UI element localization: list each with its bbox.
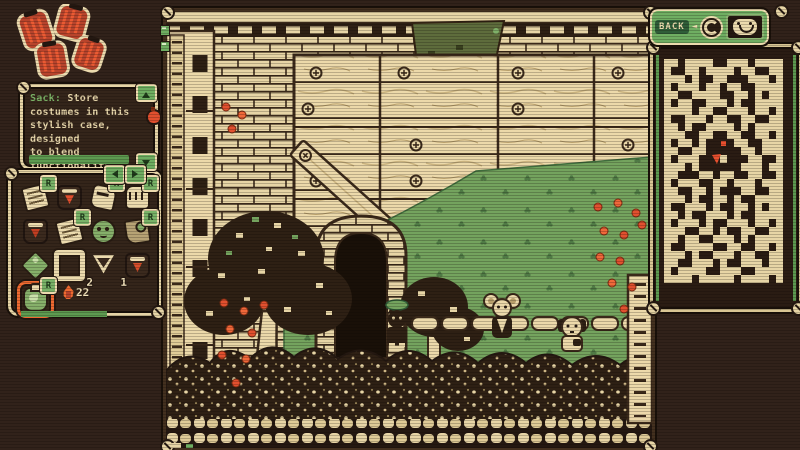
back-button-label: BACK [655,20,689,34]
equipped-badge: R [142,209,159,226]
debris-pixel [186,444,193,448]
frog-tile [726,14,764,40]
game-scene [166,11,652,448]
sack-case-cluster-icon [8,4,108,84]
inventory-prev-page-button[interactable] [104,165,125,184]
screw-icon [774,4,789,19]
inventory-panel: RRRRR21R 22 [8,170,162,316]
screw-icon [151,305,166,320]
screw-icon [4,166,19,181]
ember-flame-icon [63,285,74,299]
debris-pixel [172,443,181,448]
apron-tunic-icon [23,219,48,244]
right-pillar [628,275,652,423]
cobblestone-path [166,419,652,448]
controller-button-icon [700,16,723,39]
game-screen: Sack: Store costumes in this stylish cas… [0,0,800,450]
equipped-badge: R [74,209,91,226]
back-arrow-icon: ◄ [692,22,697,32]
sack-icon [34,39,70,80]
screw-icon [646,301,661,316]
panel-accent-bar [21,311,107,317]
equipped-badge: R [40,175,57,192]
text-reveal-bar [29,155,129,164]
screw-icon [791,301,800,316]
screw-icon [643,439,658,450]
character-cat [386,300,408,347]
inventory-slot-slingshot[interactable]: R [121,215,154,248]
inventory-slot-apron-tunic[interactable] [19,215,52,248]
equipped-badge: R [40,277,57,294]
inventory-slot-display-frame[interactable]: 2 [53,249,86,282]
back-button[interactable]: BACK ◄ [650,9,769,45]
item-count: 1 [120,276,127,289]
ember-counter: 22 [63,285,89,299]
display-frame-icon [54,250,85,281]
gem-accent-icon [160,41,170,52]
item-description-panel: Sack: Store costumes in this stylish cas… [20,84,158,170]
scroll-up-button[interactable] [136,84,157,102]
inventory-slot-costume-tag[interactable]: R [19,181,52,214]
frog-icon [733,19,757,35]
screw-icon [160,5,175,20]
player-marker [713,155,720,163]
ember-count: 22 [76,286,89,299]
gem-accent-icon [160,25,170,36]
scarf-tunic-icon [125,253,150,278]
inventory-slot-work-gloves[interactable]: R [87,181,120,214]
screw-icon [16,80,31,95]
red-tunic-icon [57,185,82,210]
minimap-grid [664,59,783,283]
screw-icon [791,40,800,55]
berry-marker-icon [146,109,162,125]
minimap-panel [650,44,800,312]
item-name: Sack: [30,93,61,104]
map-accent-strip [793,55,796,301]
inventory-slot-letter[interactable]: R [53,215,86,248]
frog-mask-icon [91,219,116,244]
funnel-charm-icon [93,255,114,276]
inventory-next-page-button[interactable] [125,165,146,184]
inventory-slot-frog-mask[interactable] [87,215,120,248]
map-accent-strip [656,55,659,301]
game-viewport[interactable] [163,8,655,450]
